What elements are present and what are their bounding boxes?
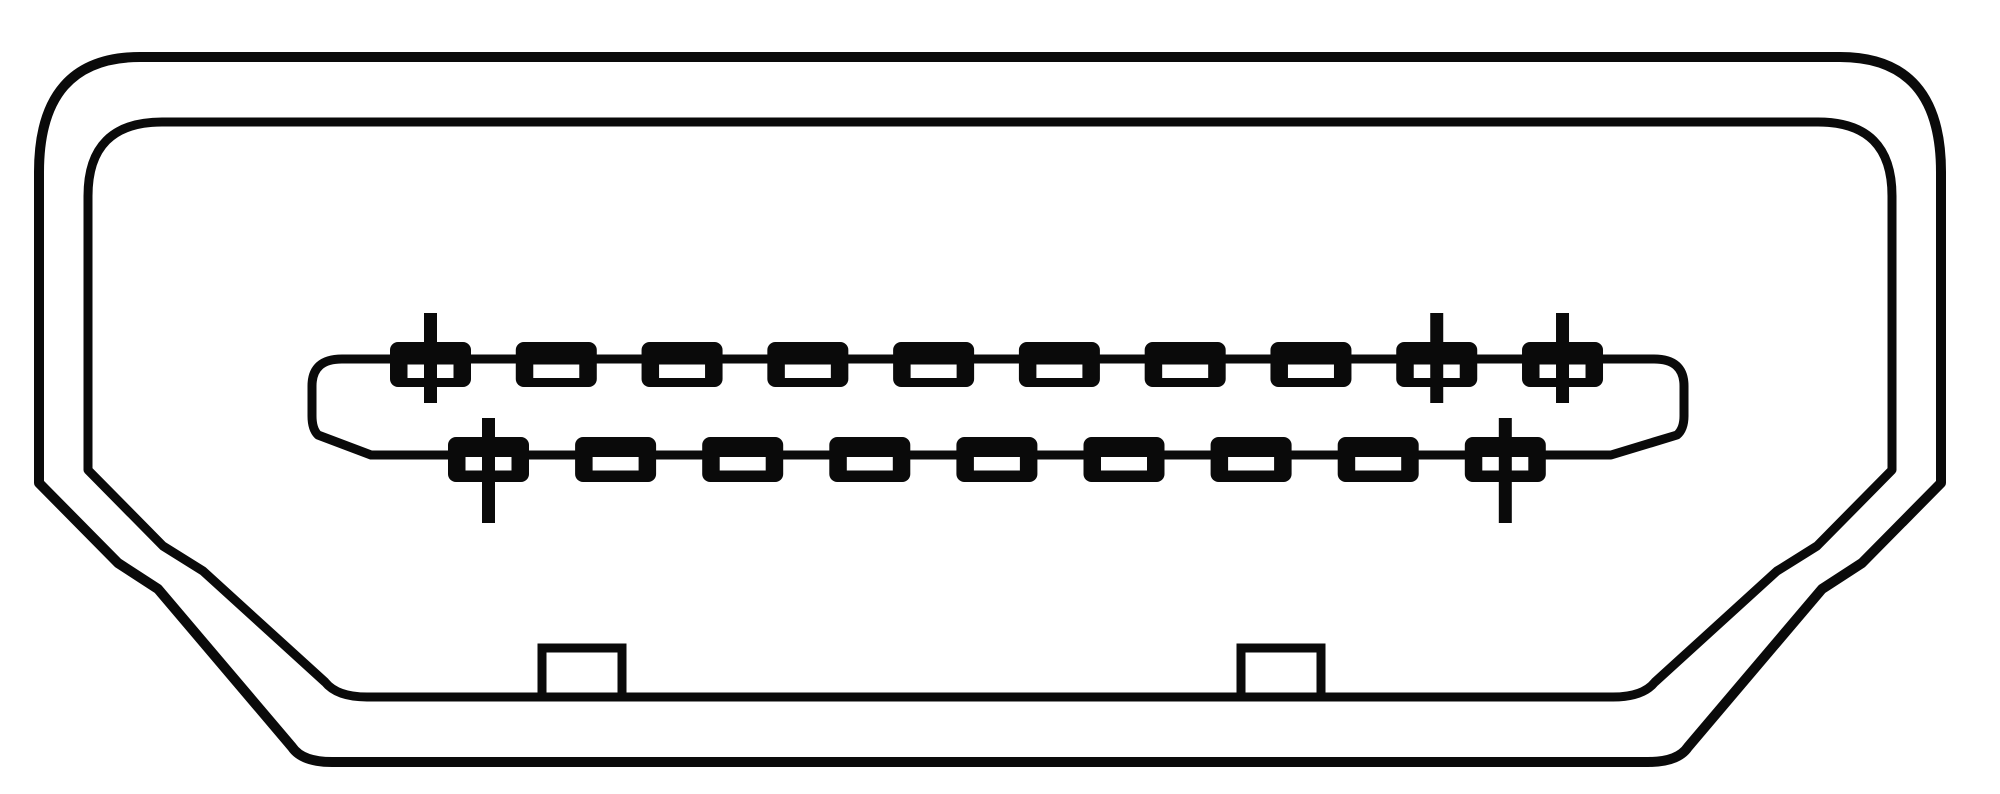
datum-crosshair-mark [1430, 313, 1443, 403]
pin-contact-slot [911, 365, 957, 379]
pin-contact-slot [1355, 457, 1401, 471]
datum-crosshair-mark [1556, 313, 1569, 403]
pin-contact-slot [720, 457, 766, 471]
outer-shell-outline [39, 57, 1941, 762]
pin-contact-slot [1101, 457, 1147, 471]
datum-crosshair-mark [424, 313, 437, 403]
pin-contact-slot [1228, 457, 1274, 471]
pin-contact-slot [593, 457, 639, 471]
datum-crosshair-mark [1499, 418, 1512, 523]
pin-contact-slot [659, 365, 705, 379]
pin-contact-slot [1036, 365, 1082, 379]
pin-contact-slot [533, 365, 579, 379]
pin-contact-slot [974, 457, 1020, 471]
pin-contact-slot [847, 457, 893, 471]
datum-crosshair-mark [482, 418, 495, 523]
pin-contact-slot [1162, 365, 1208, 379]
diagram-canvas [0, 0, 2000, 794]
inner-shell-outline [88, 122, 1892, 697]
pin-contact-slot [1288, 365, 1334, 379]
hdmi-connector-diagram [0, 0, 2000, 794]
pin-row-bottom [448, 418, 1546, 523]
pin-contact-slot [785, 365, 831, 379]
